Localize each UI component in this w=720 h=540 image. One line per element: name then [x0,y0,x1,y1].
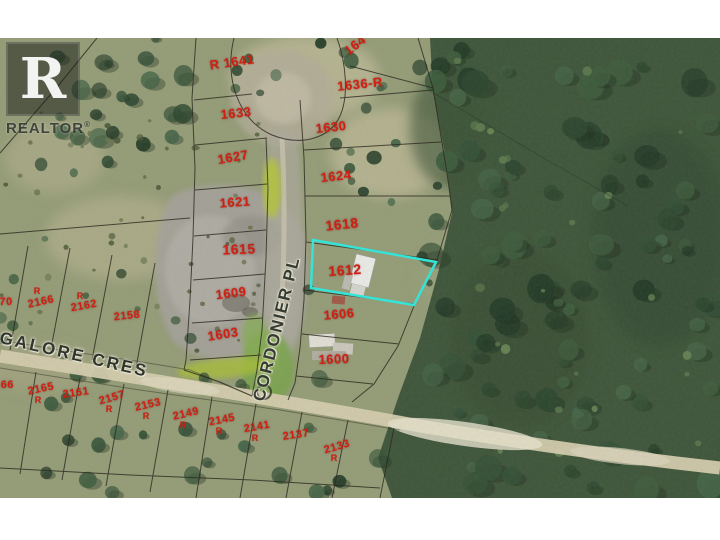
registered-trademark-symbol: ® [84,120,91,129]
realtor-wordmark: REALTOR® [6,120,116,137]
realtor-logo-letter: R [20,51,67,107]
realtor-logo-box: R [6,42,80,116]
aerial-map: R 16411641636-R1633163016271624162116181… [0,38,720,498]
realtor-logo: R REALTOR® [6,42,116,137]
listing-photo-page: R 16411641636-R1633163016271624162116181… [0,0,720,540]
